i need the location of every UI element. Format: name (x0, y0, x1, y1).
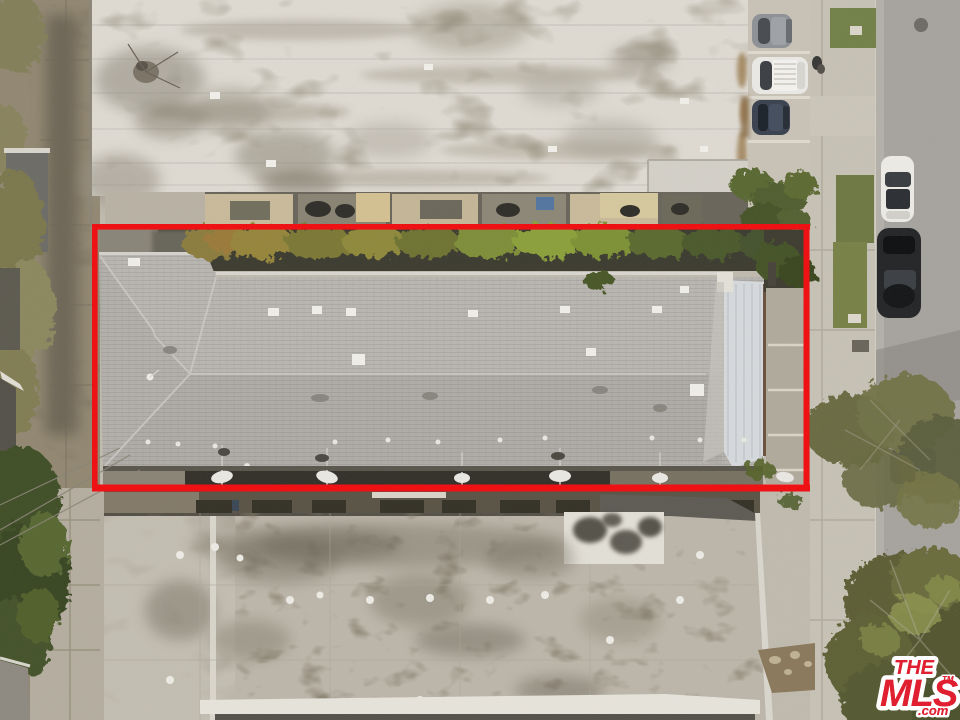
svg-text:.com: .com (918, 703, 949, 718)
svg-text:TM: TM (942, 675, 954, 684)
